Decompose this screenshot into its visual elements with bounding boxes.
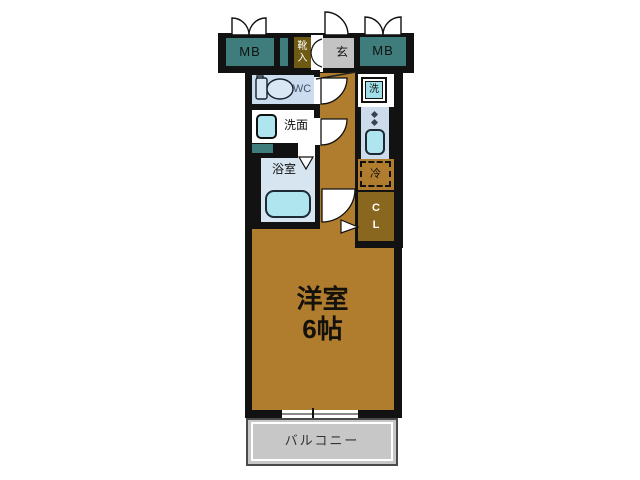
shoe-cabinet-label: 靴 入	[294, 37, 311, 68]
bathroom-label: 浴室	[266, 160, 302, 180]
washing-machine-label: 洗	[365, 81, 383, 99]
main-room-door-marker-icon	[341, 220, 358, 233]
double-door-right-mb-icon	[365, 17, 401, 35]
floor-plan: MB MB 靴 入 玄 WC 洗面 浴室 洗 冷 C L 洋室 6帖 バルコニー	[0, 0, 640, 480]
toilet-door-swing-icon	[321, 78, 347, 104]
balcony-label: バルコニー	[246, 431, 398, 451]
door-swing-overlay	[0, 0, 640, 480]
fridge-label: 冷	[360, 161, 391, 187]
meter-box-left-label: MB	[226, 38, 274, 66]
washroom-label: 洗面	[279, 114, 313, 138]
double-door-left-mb-icon	[232, 18, 266, 35]
entrance-label: 玄	[330, 38, 354, 68]
shoe-cabinet-doors-icon	[311, 39, 322, 67]
closet-label: C L	[358, 194, 394, 239]
toilet-icon	[256, 76, 293, 99]
meter-box-right-label: MB	[360, 37, 406, 66]
washroom-door-swing-icon	[321, 119, 347, 145]
toilet-label: WC	[290, 77, 314, 101]
entrance-front-door-icon	[325, 12, 348, 35]
main-room-door-swing-icon	[322, 189, 355, 222]
main-room-label: 洋室 6帖	[250, 283, 395, 347]
